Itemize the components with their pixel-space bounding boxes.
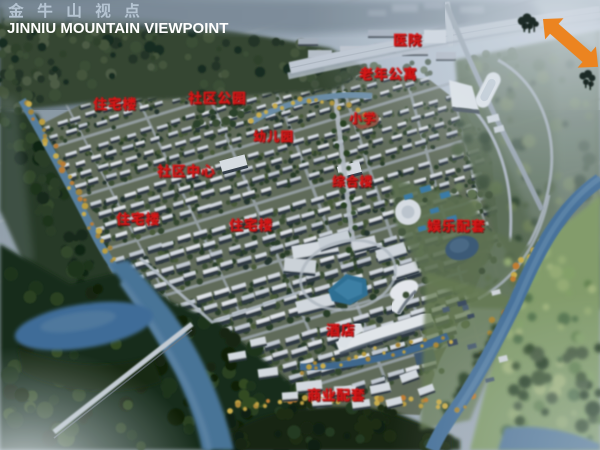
svg-text:JINNIU MOUNTAIN VIEWPOINT: JINNIU MOUNTAIN VIEWPOINT bbox=[7, 20, 228, 37]
